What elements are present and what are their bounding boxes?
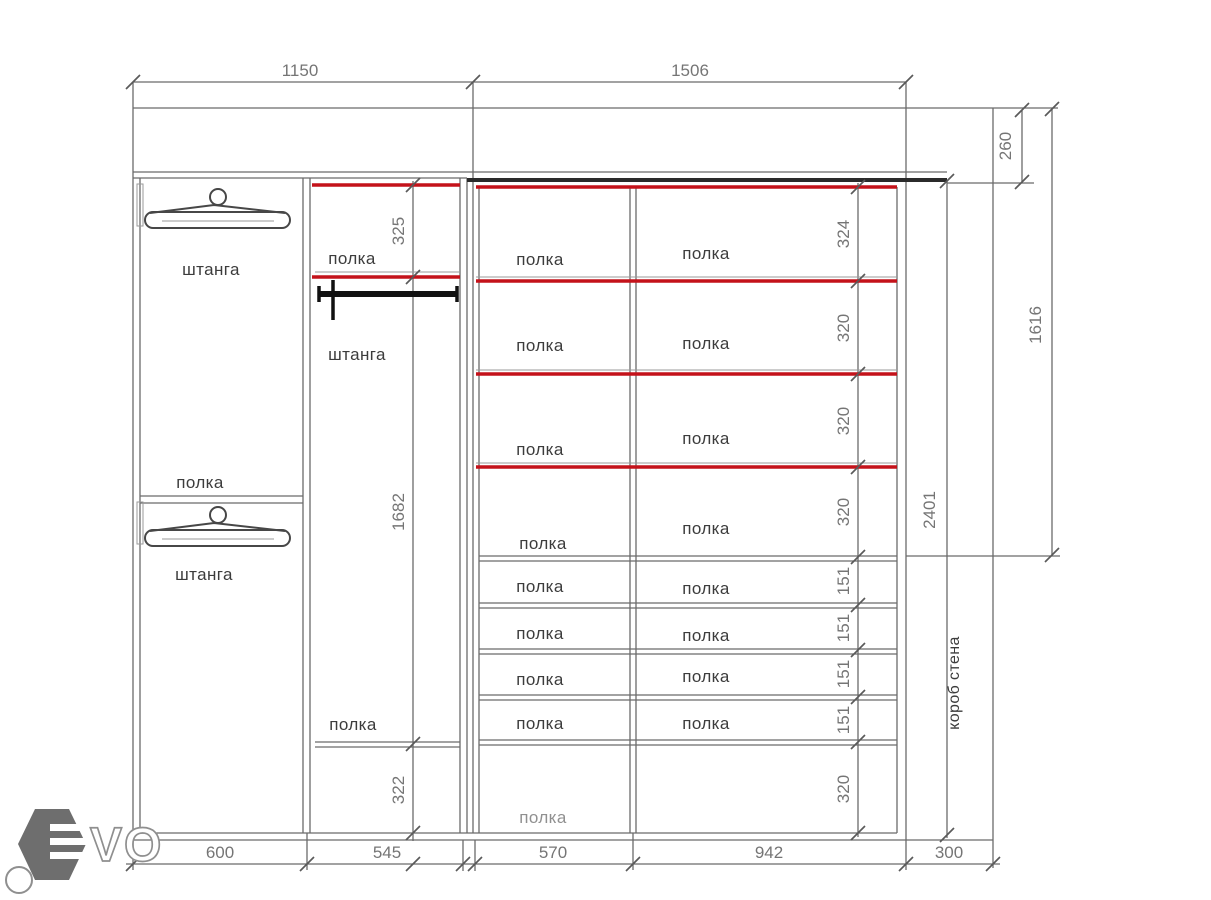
wall-box-label: короб стена bbox=[946, 636, 963, 730]
wardrobe-drawing-page: штанга полка штанга полка штанга полка 3… bbox=[0, 0, 1211, 900]
top-dimensions: 1150 1506 bbox=[282, 61, 709, 80]
shelf-label: полка bbox=[516, 577, 564, 596]
dim-row-320: 320 bbox=[834, 314, 853, 342]
shelf-label: полка bbox=[682, 714, 730, 733]
shelf-label: полка bbox=[682, 334, 730, 353]
dim-band-260: 260 bbox=[996, 132, 1015, 160]
shelf-label: полка bbox=[516, 714, 564, 733]
right-dimensions: 260 1616 2401 короб стена bbox=[920, 132, 1045, 730]
dim-bottom-942: 942 bbox=[755, 843, 783, 862]
dim-middle-322: 322 bbox=[389, 776, 408, 804]
shelf-label: полка bbox=[516, 670, 564, 689]
left-rod-top-label: штанга bbox=[182, 260, 240, 279]
dim-bottom-570: 570 bbox=[539, 843, 567, 862]
dim-row-151: 151 bbox=[834, 614, 853, 642]
shelf-label: полка bbox=[519, 534, 567, 553]
middle-rod-label: штанга bbox=[328, 345, 386, 364]
shelf-label: полка bbox=[516, 336, 564, 355]
shelf-label: полка bbox=[516, 250, 564, 269]
dim-row-320: 320 bbox=[834, 407, 853, 435]
logo: VO bbox=[6, 809, 163, 893]
structure-lines bbox=[126, 82, 1060, 871]
dim-middle-1682: 1682 bbox=[389, 493, 408, 531]
bottom-dimensions: 600 545 570 942 300 bbox=[206, 843, 963, 862]
shelf-label: полка bbox=[682, 626, 730, 645]
dim-middle-325: 325 bbox=[389, 217, 408, 245]
dim-top-1506: 1506 bbox=[671, 61, 709, 80]
dim-total-2401: 2401 bbox=[920, 491, 939, 529]
hanger-icon bbox=[145, 189, 290, 228]
dim-bottom-300: 300 bbox=[935, 843, 963, 862]
shelf-label: полка bbox=[516, 624, 564, 643]
dimension-ticks bbox=[126, 75, 1059, 871]
middle-shelf-top-label: полка bbox=[328, 249, 376, 268]
left-shelf-label: полка bbox=[176, 473, 224, 492]
dim-bottom-545: 545 bbox=[373, 843, 401, 862]
middle-shelf-bottom-label: полка bbox=[329, 715, 377, 734]
wardrobe-drawing: штанга полка штанга полка штанга полка 3… bbox=[0, 0, 1211, 900]
shelf-label: полка bbox=[682, 519, 730, 538]
shelf-label: полка bbox=[682, 579, 730, 598]
logo-watermark-circle bbox=[6, 867, 32, 893]
shelf-label: полка bbox=[682, 244, 730, 263]
dim-row-151: 151 bbox=[834, 567, 853, 595]
logo-stripe bbox=[50, 838, 88, 845]
hanger-icon bbox=[145, 507, 290, 546]
dim-row-151: 151 bbox=[834, 660, 853, 688]
dim-row-320: 320 bbox=[834, 498, 853, 526]
dim-bottom-600: 600 bbox=[206, 843, 234, 862]
middle-column: полка штанга полка 325 1682 322 bbox=[318, 217, 458, 804]
shelf-row-dimensions: 324 320 320 320 151 151 151 151 320 bbox=[834, 220, 853, 803]
shelf-label: полка bbox=[682, 429, 730, 448]
shelf-label-faded: полка bbox=[519, 808, 567, 827]
dim-top-1150: 1150 bbox=[282, 61, 319, 80]
logo-letters: VO bbox=[90, 819, 163, 872]
shelf-label: полка bbox=[682, 667, 730, 686]
column-942-labels: полка полка полка полка полка полка полк… bbox=[682, 244, 730, 733]
clothes-rail-icon bbox=[318, 280, 458, 320]
left-section: штанга полка штанга bbox=[145, 189, 290, 584]
logo-stripe bbox=[50, 852, 88, 859]
logo-stripe bbox=[50, 824, 88, 831]
shelf-label: полка bbox=[516, 440, 564, 459]
left-rod-bottom-label: штанга bbox=[175, 565, 233, 584]
dim-upper-1616: 1616 bbox=[1026, 306, 1045, 344]
dim-row-151: 151 bbox=[834, 706, 853, 734]
dim-row-324: 324 bbox=[834, 220, 853, 248]
dim-row-320: 320 bbox=[834, 775, 853, 803]
